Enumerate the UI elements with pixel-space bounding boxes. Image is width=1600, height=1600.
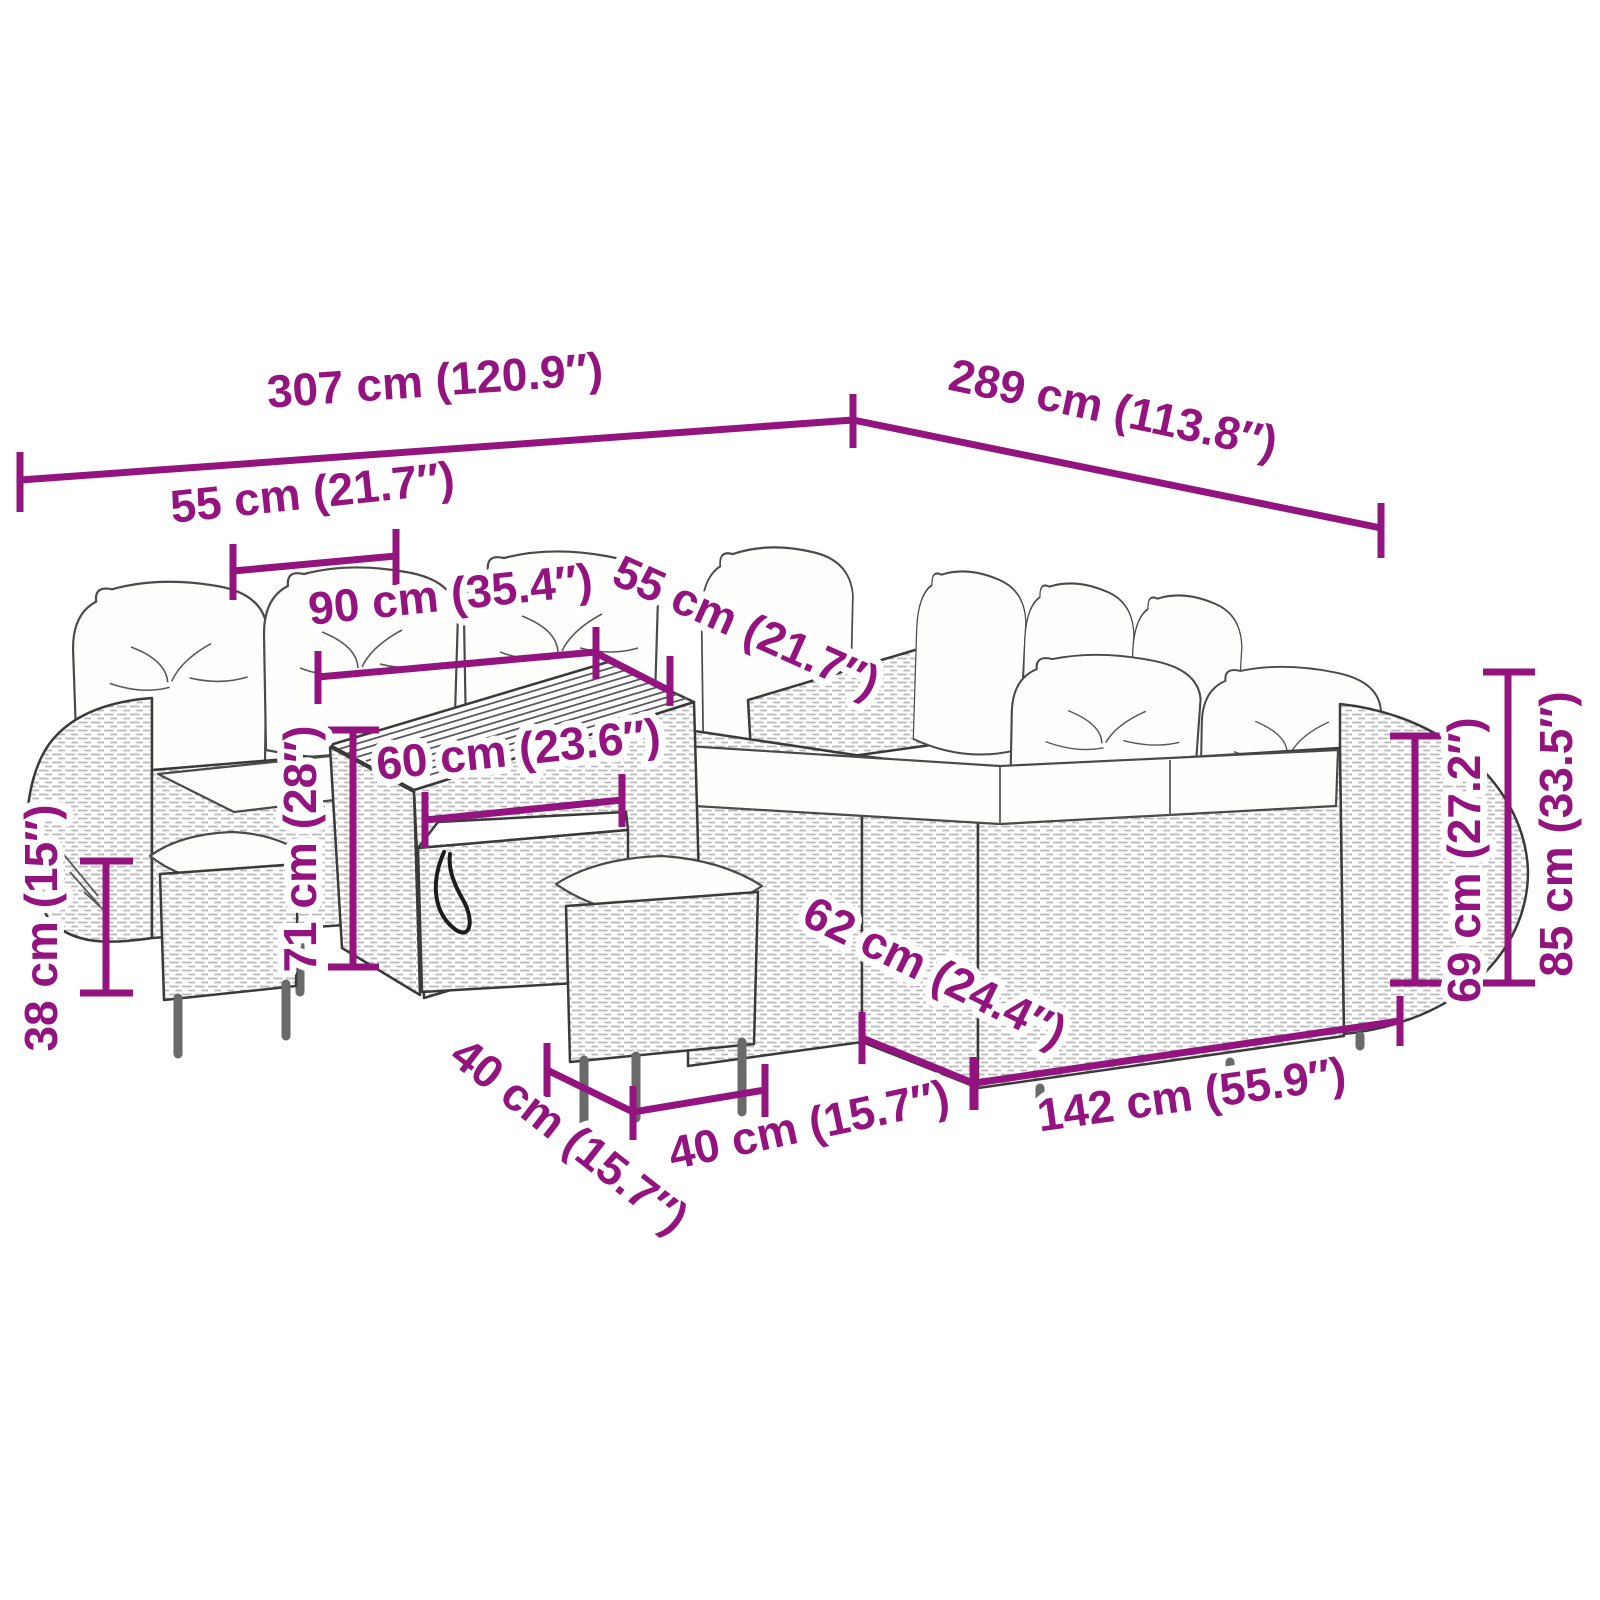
back-cushion [912,566,1028,760]
dim-stool-width-label: 40 cm (15.7″) [664,1069,954,1179]
dim-total-depth: 289 cm (113.8″) [853,348,1381,558]
diagram-svg: 307 cm (120.9″) 289 cm (113.8″) 55 cm (2… [0,0,1600,1600]
dimension-diagram: 307 cm (120.9″) 289 cm (113.8″) 55 cm (2… [0,0,1600,1600]
dim-total-width-label: 307 cm (120.9″) [265,342,604,417]
dim-stool-height-label: 38 cm (15″) [15,804,67,1051]
dim-backrest-height-label: 69 cm (27.2″) [1438,717,1490,1002]
stool-middle-body [566,892,758,1062]
dim-table-height-label: 71 cm (28″) [274,725,326,972]
dim-total-height-label: 85 cm (33.5″) [1530,691,1582,976]
dim-total-depth-line [853,420,1381,558]
dim-stool-width: 40 cm (15.7″) [633,1064,954,1179]
